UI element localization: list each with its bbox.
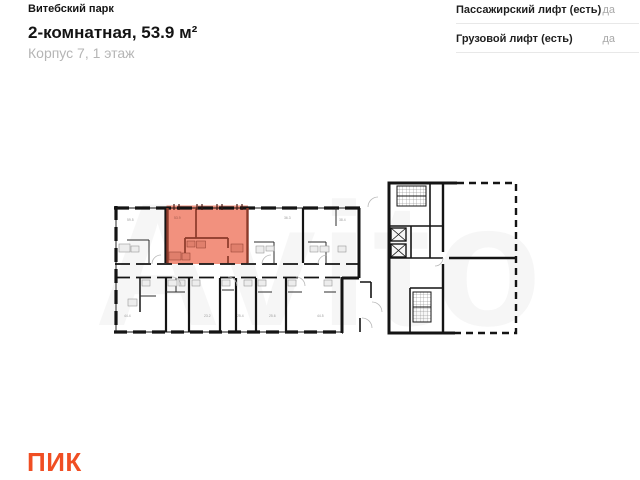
room-area-label: 53.9 <box>174 216 181 220</box>
room-area-label: 59.5 <box>127 218 134 222</box>
room-area-label: 23.2 <box>204 314 211 318</box>
watermark: Avito <box>94 168 545 363</box>
room-area-label: 44.5 <box>317 314 324 318</box>
room-area-label: 25.4 <box>237 314 244 318</box>
room-area-label: 38.4 <box>339 218 346 222</box>
pik-logo: ПИК <box>27 449 82 475</box>
room-area-label: 25.6 <box>269 314 276 318</box>
room-area-label: 44.4 <box>124 314 131 318</box>
floorplan-image: Avito <box>0 0 640 480</box>
room-area-label: 36.3 <box>284 216 291 220</box>
